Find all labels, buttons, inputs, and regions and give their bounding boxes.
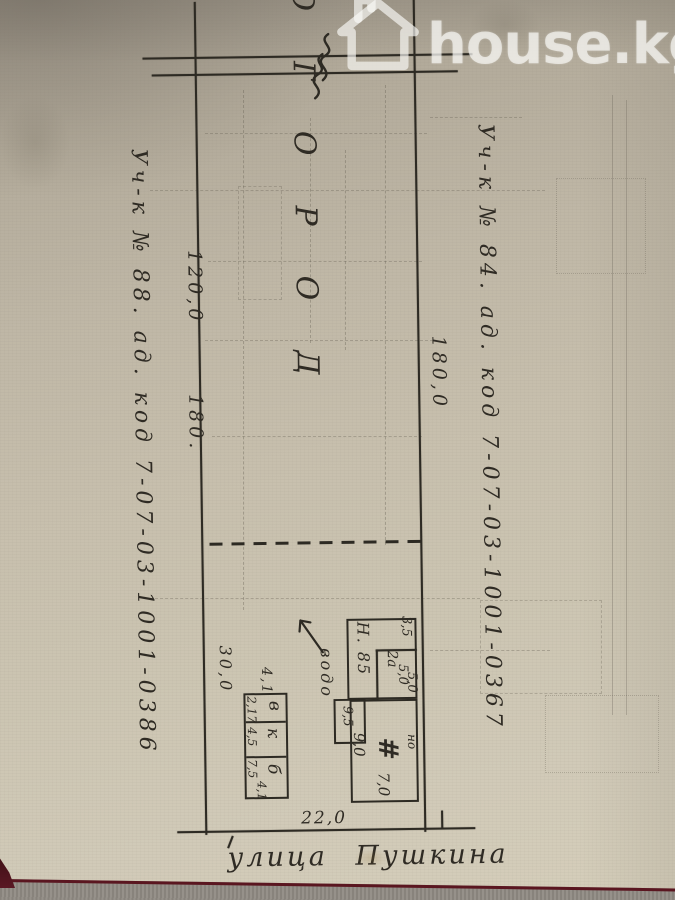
outbuilding-top-dim: 4,1 [259,667,273,695]
room-b-label: б [264,764,281,775]
kitchen-label: Н. 85 [354,622,371,677]
watermark-brand-text: house.kg [427,12,675,77]
room-b-size: 7,5 [246,759,258,778]
dim-left-middle: 180. [185,394,205,453]
house-logo-icon [331,0,425,72]
house-hatch-mark: # [374,737,401,760]
site-plan-drawing: Уч-к № 88. ад. код 7-07-03-1001-0386 Уч-… [0,0,675,900]
house-note: но [406,734,418,749]
paper-stain [354,849,388,867]
boundary-tick-right [441,811,443,829]
room-k-size: 4,5 [246,727,258,746]
right-parcel-note: Уч-к № 84. ад. код 7-07-03-1001-0367 [473,124,503,731]
dim-yard-depth: 30,0 [217,645,234,693]
room-k-label: к [264,728,281,738]
outbuilding-bottom-dim: 4,1 [256,781,268,800]
dim-left-upper: 120,0 [184,250,204,325]
house-width-dim: 9,0 [351,733,366,757]
dim-right-middle: 180,0 [428,335,448,410]
watermark: house.kg [0,0,675,90]
left-parcel-note: Уч-к № 88. ад. код 7-07-03-1001-0386 [127,149,157,756]
kitchen-room-size2: 5,0 [405,672,418,693]
utility-note: водо [318,648,335,699]
room-v-label: в [265,701,282,711]
house-depth-dim: 7,0 [376,772,391,796]
scanned-plot-plan-photo: Уч-к № 88. ад. код 7-07-03-1001-0386 Уч-… [0,0,675,900]
kitchen-dim: 3,5 [399,616,412,637]
dim-street-frontage: 22,0 [301,810,347,828]
parcel-divider-dashed-line [209,540,422,546]
porch-size: 9,5 [341,706,354,727]
room-v-size: 2,17 [245,696,257,723]
